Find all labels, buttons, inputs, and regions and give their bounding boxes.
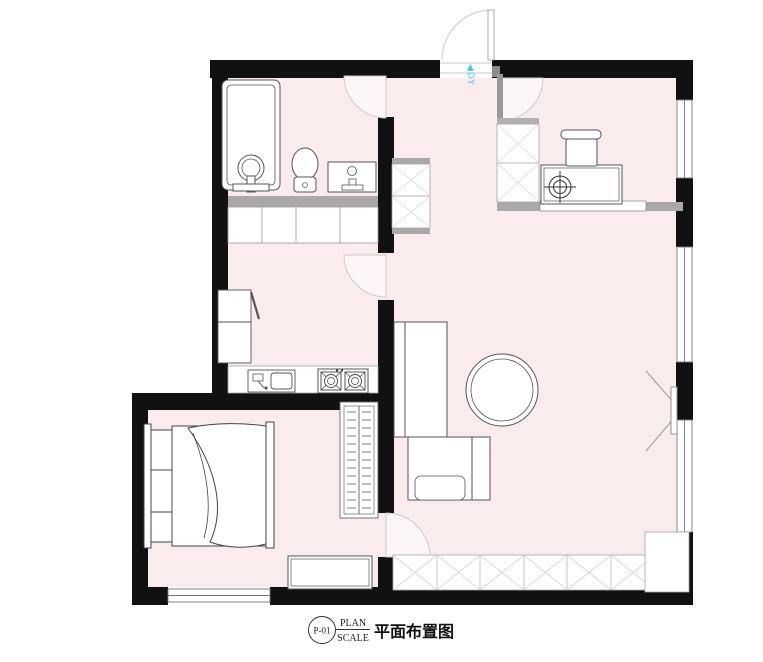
bed [172, 422, 274, 548]
wall-right-2 [676, 178, 693, 247]
wall-right-3 [676, 362, 693, 420]
shoe-cabinet [392, 158, 430, 234]
kitchen-sink [248, 370, 295, 392]
window-right-3 [677, 420, 692, 532]
sofa [394, 322, 447, 437]
storage-cabinet-row [393, 555, 655, 590]
study-door-leaf [497, 74, 503, 122]
page-title: 平面布置图 [374, 622, 454, 641]
window-right-2 [677, 247, 692, 362]
window-right-1 [677, 100, 692, 178]
wall-top-left [210, 60, 440, 78]
chaise [408, 437, 490, 500]
wall-top-right [492, 60, 693, 78]
title-label-scale: SCALE [337, 633, 369, 644]
entry-annotation: ◀DY [465, 64, 475, 86]
radiator [340, 402, 378, 518]
stove [318, 369, 368, 393]
wall-hall-b [378, 300, 394, 513]
window-bedroom-bottom [168, 589, 270, 602]
corner-cabinet [645, 532, 689, 592]
wall-bottom-a [132, 587, 168, 605]
toilet [292, 148, 318, 192]
title-block: P-01 PLAN SCALE 平面布置图 [309, 617, 455, 645]
desk-chair [561, 130, 601, 166]
desk [541, 165, 622, 204]
bathtub [222, 80, 280, 192]
entry-door-leaf [488, 10, 494, 60]
floor-plan-page: ◀DY [0, 0, 763, 662]
bench [288, 556, 372, 589]
wall-right-1 [676, 60, 693, 100]
kitchen-upper-cabinets [228, 207, 378, 243]
wall-hall-c [378, 557, 394, 605]
round-table [466, 354, 538, 426]
bathroom-sink [328, 162, 376, 192]
drawing-number: P-01 [313, 626, 330, 636]
title-label-plan: PLAN [340, 618, 366, 629]
partition-bathroom-bottom [228, 196, 378, 207]
entry-door-arc [442, 10, 492, 60]
floor-plan-canvas: ◀DY [0, 0, 763, 662]
wardrobe [497, 118, 539, 202]
